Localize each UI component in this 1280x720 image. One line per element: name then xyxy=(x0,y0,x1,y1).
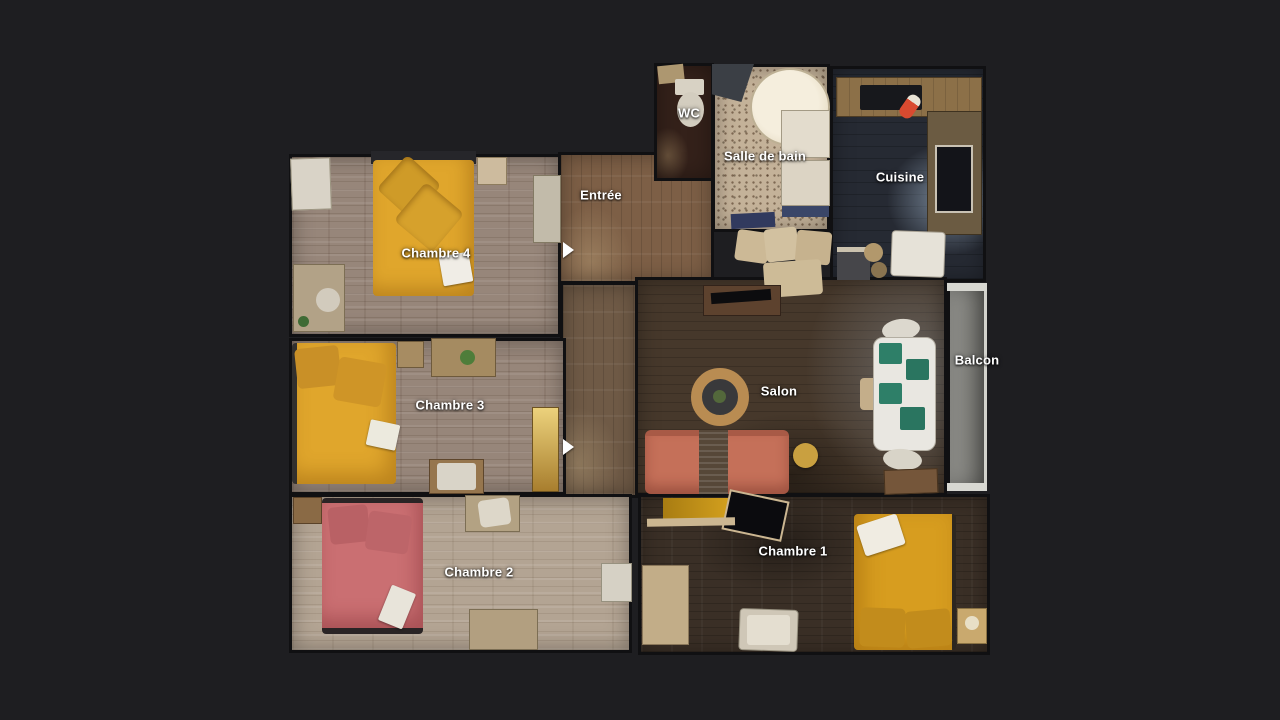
nightstand-chambre2 xyxy=(293,497,322,524)
kitchen-stool-a xyxy=(864,243,883,262)
label-entree: Entrée xyxy=(580,188,622,203)
plant-chambre4 xyxy=(298,316,309,327)
placemat-3 xyxy=(879,383,902,404)
label-chambre-3: Chambre 3 xyxy=(416,398,485,413)
pillow-chambre2-a xyxy=(327,504,371,545)
desk-chambre2-bottom xyxy=(469,609,538,650)
pouf xyxy=(793,443,818,468)
label-chambre-2: Chambre 2 xyxy=(445,565,514,580)
plant-chambre3 xyxy=(460,350,475,365)
placemat-2 xyxy=(906,359,929,380)
placemat-4 xyxy=(900,407,925,430)
pillow-chambre3-b xyxy=(333,356,388,408)
desk-salon-corner xyxy=(884,468,939,495)
kitchen-table xyxy=(890,230,946,278)
bath-mat xyxy=(731,212,776,229)
cabinet-chambre2 xyxy=(601,563,632,602)
sofa-throw xyxy=(699,430,728,494)
frame-strip-chambre1 xyxy=(647,517,735,527)
pillow-chambre1-a xyxy=(859,607,905,648)
bench-chambre4 xyxy=(290,157,332,210)
coffee-table-plant xyxy=(713,390,726,403)
floorplan-view[interactable]: WC Salle de bain Cuisine Entrée Chambre … xyxy=(0,0,1280,720)
dryer xyxy=(781,160,830,206)
pillow-chambre2-b xyxy=(364,510,412,555)
wardrobe-chambre4 xyxy=(533,175,561,243)
balcony-frame-top xyxy=(947,283,987,291)
nightstand-chambre4 xyxy=(477,157,507,185)
bath-shelf-strip xyxy=(782,206,829,217)
room-balcon[interactable] xyxy=(947,283,987,491)
room-entree-corridor[interactable] xyxy=(560,282,640,498)
nav-arrow-icon[interactable] xyxy=(563,242,574,258)
lamp-chambre1 xyxy=(965,616,979,630)
nightstand-chambre3 xyxy=(397,341,424,368)
cushion-chambre3 xyxy=(437,463,476,490)
label-cuisine: Cuisine xyxy=(876,170,924,185)
kitchen-sink xyxy=(935,145,973,213)
label-salon: Salon xyxy=(761,384,797,399)
label-chambre-1: Chambre 1 xyxy=(759,544,828,559)
nav-arrow-icon[interactable] xyxy=(563,439,574,455)
label-salle-de-bain: Salle de bain xyxy=(724,149,806,164)
balcony-frame-bottom xyxy=(947,483,987,491)
desk-chambre1 xyxy=(642,565,689,645)
label-chambre-4: Chambre 4 xyxy=(402,246,471,261)
ottoman-cushion-chambre1 xyxy=(747,615,790,645)
placemat-1 xyxy=(879,343,902,364)
label-wc: WC xyxy=(678,106,700,121)
label-balcon: Balcon xyxy=(955,353,1000,368)
chair-chambre2 xyxy=(477,497,511,528)
pillow-chambre1-b xyxy=(904,608,952,649)
chair-chambre4 xyxy=(316,288,340,312)
wardrobe-chambre3 xyxy=(532,407,559,492)
kitchen-stool-b xyxy=(871,262,887,278)
